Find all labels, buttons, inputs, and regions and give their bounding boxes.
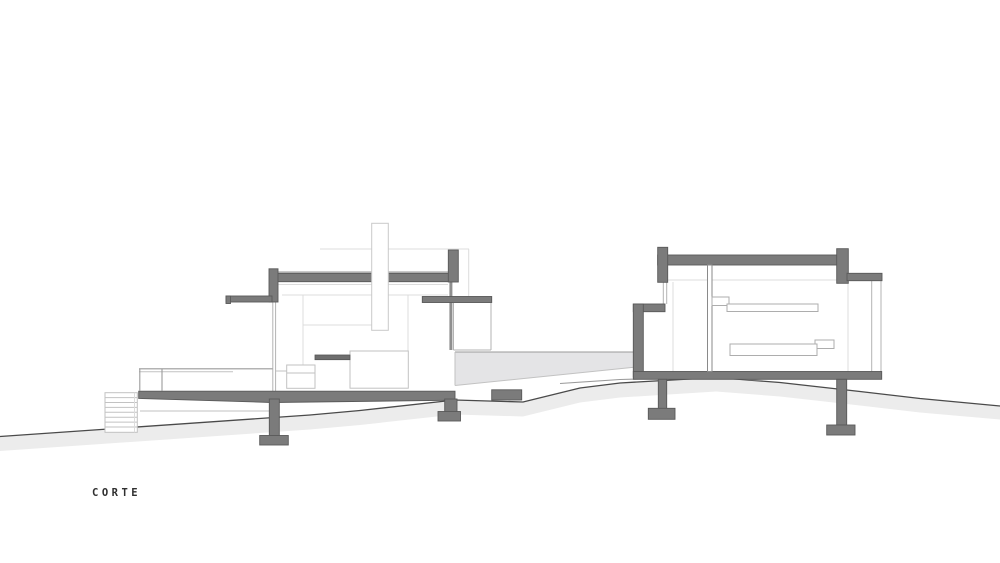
stair — [105, 393, 137, 433]
footing-2 — [827, 425, 855, 435]
column-2 — [445, 399, 457, 412]
roof-slab — [658, 255, 847, 265]
terrain — [0, 377, 1000, 451]
canopy-end-cap — [226, 296, 231, 304]
low-cabinet — [287, 365, 315, 388]
patio-pier-footing — [492, 390, 522, 400]
left-wall — [633, 304, 643, 377]
right-pavilion — [633, 247, 882, 435]
island-block — [350, 351, 408, 388]
floor-deck-slab — [139, 391, 455, 402]
link-canopy-slab — [422, 297, 491, 303]
footing — [260, 436, 289, 446]
section-drawing-canvas: CORTE — [0, 0, 1000, 563]
chimney — [372, 223, 389, 330]
roof-slab — [270, 273, 449, 281]
right-roof-upstand — [448, 250, 458, 282]
drawing-title: CORTE — [92, 487, 141, 499]
deck-railing — [139, 369, 273, 391]
earth-band — [0, 378, 1000, 452]
upper-shelf-ledge — [712, 297, 729, 306]
interior-partition — [708, 265, 713, 372]
left-entry-canopy — [226, 296, 272, 302]
wing-roof-slab — [847, 273, 882, 280]
footing-2 — [438, 412, 461, 422]
column — [658, 379, 666, 409]
column-2 — [837, 379, 847, 425]
lower-shelf-board — [730, 344, 817, 356]
column — [269, 399, 279, 436]
lower-shelf-ledge — [815, 340, 834, 349]
left-parapet — [658, 247, 668, 282]
upper-shelf-board — [727, 304, 818, 312]
kitchen-island — [276, 351, 408, 388]
footing — [648, 408, 675, 419]
right-glass-mullion — [449, 282, 452, 350]
countertop — [315, 355, 350, 360]
wall-shelves — [712, 297, 834, 356]
section-drawing — [0, 0, 1000, 563]
floor-slab — [633, 372, 881, 380]
